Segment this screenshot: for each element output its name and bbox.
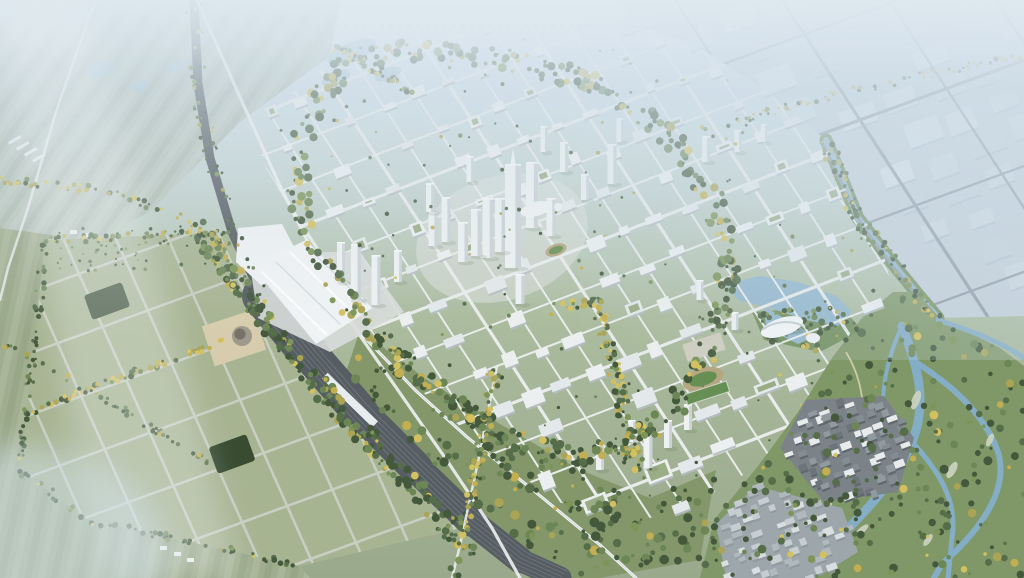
color-veil (0, 0, 1024, 578)
atmosphere (0, 0, 1024, 578)
masterplan-render-figure (0, 0, 1024, 578)
city-aerial-rendering (0, 0, 1024, 578)
